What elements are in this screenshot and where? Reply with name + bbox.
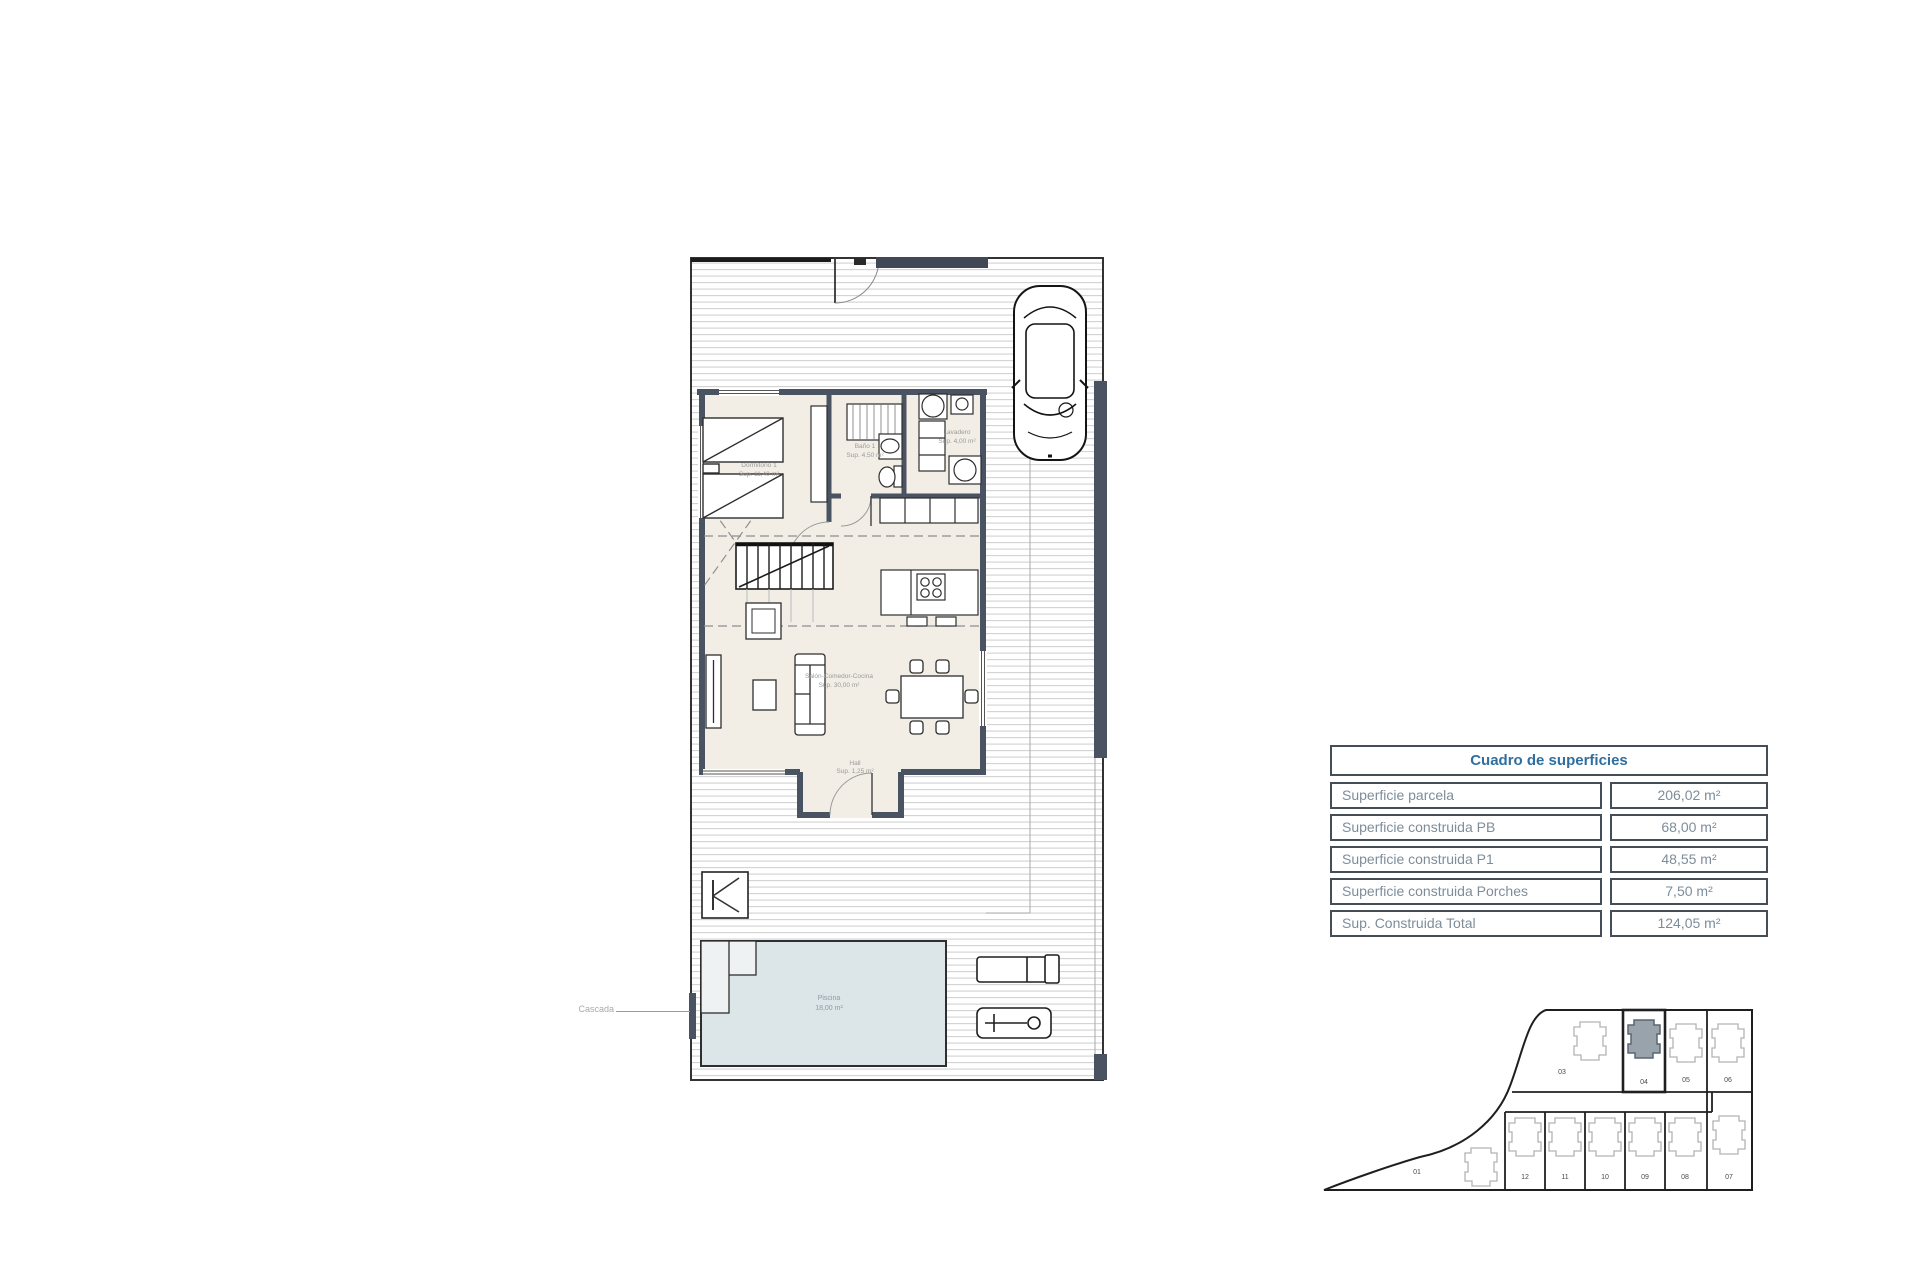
- plot-lines: [1505, 1010, 1752, 1190]
- table-row: Superficie construida Porches 7,50 m²: [1330, 878, 1768, 905]
- waterfall-feature: [689, 993, 696, 1039]
- plot-label-08: 08: [1681, 1174, 1689, 1181]
- wardrobe: [811, 406, 827, 502]
- plot-label-03: 03: [1558, 1069, 1566, 1076]
- table-row: Sup. Construida Total 124,05 m²: [1330, 910, 1768, 937]
- sliding-gate: [876, 257, 988, 268]
- party-wall: [1094, 381, 1107, 758]
- bedroom-area: Sup. 11,40 m²: [739, 471, 780, 478]
- plot-label-01: 01: [1413, 1169, 1421, 1176]
- row-value: 206,02 m²: [1610, 782, 1768, 809]
- table-row: Superficie parcela 206,02 m²: [1330, 782, 1768, 809]
- row-value: 68,00 m²: [1610, 814, 1768, 841]
- row-label: Superficie parcela: [1330, 782, 1602, 809]
- bedroom-label: Dormitorio 1: [741, 462, 777, 469]
- surface-table-title: Cuadro de superficies: [1330, 745, 1768, 776]
- table-row: Superficie construida P1 48,55 m²: [1330, 846, 1768, 873]
- party-wall-lower: [1094, 1054, 1107, 1080]
- pool-area-label: 18,00 m²: [815, 1005, 843, 1012]
- north-arrow-icon: [702, 872, 748, 918]
- highlighted-house: [1628, 1020, 1660, 1058]
- living-area: Sup. 30,00 m²: [819, 682, 861, 689]
- plot-label-04: 04: [1640, 1079, 1648, 1086]
- pool: Piscina 18,00 m²: [701, 941, 946, 1066]
- plot-label-05: 05: [1682, 1077, 1690, 1084]
- table-row: Superficie construida PB 68,00 m²: [1330, 814, 1768, 841]
- plot-label-06: 06: [1724, 1077, 1732, 1084]
- surface-table: Cuadro de superficies Superficie parcela…: [1330, 745, 1768, 942]
- hall-label: Hall: [849, 760, 861, 767]
- living-label: Salón-Comedor-Cocina: [805, 673, 873, 680]
- floor-plan-drawing: Piscina 18,00 m² Dormitorio 1 Sup. 11,40…: [689, 256, 1109, 1086]
- row-label: Superficie construida P1: [1330, 846, 1602, 873]
- site-boundary: [1324, 1010, 1752, 1190]
- car-icon: [1012, 286, 1088, 460]
- row-value: 124,05 m²: [1610, 910, 1768, 937]
- row-value: 7,50 m²: [1610, 878, 1768, 905]
- site-key-plan: 01 03 04 05 06 12 11 10 09 08 07: [1322, 998, 1802, 1198]
- row-label: Sup. Construida Total: [1330, 910, 1602, 937]
- plot-label-12: 12: [1521, 1174, 1529, 1181]
- plot-label-09: 09: [1641, 1174, 1649, 1181]
- plot-labels: 01 03 04 05 06 12 11 10 09 08 07: [1413, 1069, 1733, 1181]
- plot-label-07: 07: [1725, 1174, 1733, 1181]
- waterfall-label: Cascada: [548, 1004, 614, 1014]
- row-value: 48,55 m²: [1610, 846, 1768, 873]
- laundry-label: Lavadero: [943, 429, 970, 436]
- pool-label: Piscina: [818, 995, 841, 1002]
- plot-label-11: 11: [1561, 1174, 1568, 1181]
- bathroom-label: Baño 1: [855, 443, 876, 450]
- plot-label-10: 10: [1601, 1174, 1609, 1181]
- architectural-plan-sheet: Piscina 18,00 m² Dormitorio 1 Sup. 11,40…: [0, 0, 1920, 1280]
- row-label: Superficie construida Porches: [1330, 878, 1602, 905]
- laundry-area: Sup. 4,00 m²: [938, 438, 976, 445]
- bathroom-area: Sup. 4,50 m²: [846, 452, 884, 459]
- neighbor-houses: [1465, 1022, 1745, 1186]
- hall-area: Sup. 1,25 m²: [836, 768, 874, 775]
- row-label: Superficie construida PB: [1330, 814, 1602, 841]
- waterfall-leader-line: [616, 1011, 690, 1012]
